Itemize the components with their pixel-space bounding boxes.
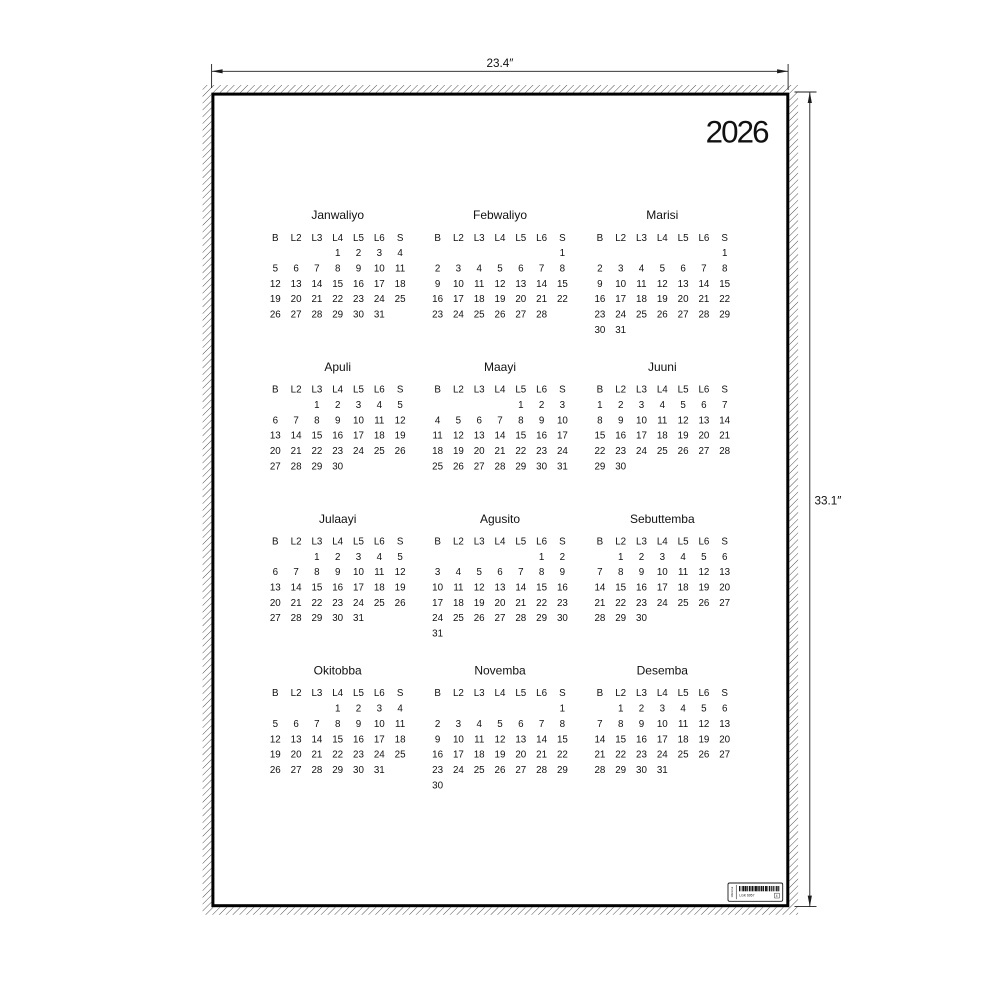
svg-text:21: 21: [515, 598, 526, 609]
svg-text:2: 2: [597, 264, 602, 275]
svg-text:L3: L3: [474, 536, 485, 547]
svg-text:1: 1: [518, 400, 523, 411]
svg-text:19: 19: [395, 431, 406, 442]
svg-text:27: 27: [719, 750, 730, 761]
svg-text:28: 28: [698, 310, 709, 321]
svg-text:L5: L5: [353, 385, 364, 396]
svg-text:L5: L5: [353, 536, 364, 547]
svg-text:21: 21: [291, 598, 302, 609]
svg-text:7: 7: [722, 400, 727, 411]
svg-text:Maayi: Maayi: [484, 360, 516, 374]
svg-text:2: 2: [639, 704, 644, 715]
svg-text:B: B: [272, 385, 279, 396]
svg-text:26: 26: [395, 598, 406, 609]
svg-text:L2: L2: [453, 536, 464, 547]
svg-text:4: 4: [476, 264, 482, 275]
svg-text:24: 24: [453, 310, 464, 321]
svg-text:27: 27: [515, 310, 526, 321]
svg-text:8: 8: [314, 415, 320, 426]
svg-text:23.4″: 23.4″: [487, 57, 514, 70]
svg-text:17: 17: [657, 582, 668, 593]
svg-text:26: 26: [270, 310, 281, 321]
svg-text:13: 13: [678, 279, 689, 290]
svg-text:12: 12: [270, 279, 281, 290]
svg-text:5: 5: [701, 704, 707, 715]
svg-text:9: 9: [539, 415, 544, 426]
svg-text:31: 31: [353, 613, 364, 624]
svg-text:10: 10: [636, 415, 647, 426]
svg-text:3: 3: [377, 704, 383, 715]
svg-text:30: 30: [615, 461, 626, 472]
svg-text:21: 21: [311, 750, 322, 761]
svg-text:L6: L6: [374, 688, 385, 699]
svg-text:L2: L2: [291, 233, 302, 244]
svg-text:15: 15: [557, 734, 568, 745]
svg-text:24: 24: [374, 750, 385, 761]
svg-text:22: 22: [536, 598, 547, 609]
svg-text:24: 24: [615, 310, 626, 321]
svg-text:26: 26: [474, 613, 485, 624]
svg-text:24: 24: [353, 446, 364, 457]
svg-text:11: 11: [474, 734, 484, 745]
svg-text:S: S: [397, 385, 404, 396]
svg-text:30: 30: [536, 461, 547, 472]
svg-text:30: 30: [332, 613, 343, 624]
svg-text:L4: L4: [657, 385, 668, 396]
svg-text:L3: L3: [636, 688, 647, 699]
svg-text:21: 21: [594, 598, 605, 609]
svg-text:8: 8: [597, 415, 603, 426]
svg-text:9: 9: [356, 264, 361, 275]
svg-text:5: 5: [701, 552, 707, 563]
svg-text:19: 19: [678, 431, 689, 442]
svg-text:13: 13: [474, 431, 485, 442]
svg-text:14: 14: [515, 582, 526, 593]
svg-text:23: 23: [353, 750, 364, 761]
svg-text:14: 14: [311, 734, 322, 745]
svg-text:16: 16: [636, 582, 647, 593]
svg-text:14: 14: [291, 431, 302, 442]
svg-text:Marisi: Marisi: [646, 208, 678, 222]
svg-text:22: 22: [557, 294, 568, 305]
svg-text:18: 18: [474, 750, 485, 761]
svg-text:12: 12: [495, 734, 506, 745]
svg-text:1: 1: [722, 248, 727, 259]
svg-text:6: 6: [293, 264, 299, 275]
svg-text:S: S: [397, 688, 404, 699]
svg-text:7: 7: [293, 567, 298, 578]
svg-text:28: 28: [311, 765, 322, 776]
svg-text:L6: L6: [374, 233, 385, 244]
svg-text:L3: L3: [311, 385, 322, 396]
svg-text:25: 25: [432, 461, 443, 472]
svg-text:30: 30: [594, 325, 605, 336]
svg-text:17: 17: [615, 294, 626, 305]
svg-text:17: 17: [432, 598, 443, 609]
svg-text:25: 25: [657, 446, 668, 457]
svg-text:20: 20: [719, 582, 730, 593]
svg-text:L6: L6: [536, 688, 547, 699]
svg-text:L5: L5: [678, 688, 689, 699]
svg-text:21: 21: [536, 750, 547, 761]
svg-text:L3: L3: [474, 688, 485, 699]
svg-text:L4: L4: [332, 233, 343, 244]
svg-text:10: 10: [374, 264, 385, 275]
svg-text:Janwaliyo: Janwaliyo: [311, 208, 364, 222]
svg-text:5: 5: [660, 264, 666, 275]
svg-text:S: S: [721, 233, 728, 244]
svg-text:4: 4: [660, 400, 666, 411]
svg-text:18: 18: [636, 294, 647, 305]
svg-text:10: 10: [453, 279, 464, 290]
svg-text:22: 22: [332, 294, 343, 305]
svg-text:Agusito: Agusito: [480, 512, 520, 526]
svg-text:16: 16: [432, 294, 443, 305]
svg-text:27: 27: [474, 461, 485, 472]
svg-text:5: 5: [497, 264, 503, 275]
svg-text:6: 6: [701, 400, 707, 411]
svg-text:28: 28: [536, 765, 547, 776]
svg-text:L6: L6: [374, 536, 385, 547]
svg-text:25: 25: [474, 310, 485, 321]
svg-text:28: 28: [594, 613, 605, 624]
svg-text:25: 25: [374, 446, 385, 457]
svg-text:L3: L3: [474, 233, 485, 244]
svg-text:17: 17: [557, 431, 568, 442]
svg-text:27: 27: [515, 765, 526, 776]
svg-text:29: 29: [515, 461, 526, 472]
svg-text:26: 26: [270, 765, 281, 776]
svg-text:13: 13: [291, 734, 302, 745]
svg-text:13: 13: [719, 567, 730, 578]
svg-text:S: S: [559, 385, 566, 396]
svg-text:5: 5: [397, 552, 403, 563]
svg-text:9: 9: [435, 734, 440, 745]
svg-text:29: 29: [615, 765, 626, 776]
svg-text:L6: L6: [536, 385, 547, 396]
svg-text:18: 18: [395, 279, 406, 290]
svg-text:14UGCal: 14UGCal: [730, 886, 734, 897]
svg-text:2: 2: [435, 264, 440, 275]
svg-text:10: 10: [657, 567, 668, 578]
svg-text:6: 6: [476, 415, 482, 426]
svg-text:11: 11: [657, 415, 667, 426]
svg-text:7: 7: [539, 719, 544, 730]
svg-text:24: 24: [636, 446, 647, 457]
svg-text:24: 24: [374, 294, 385, 305]
svg-text:6: 6: [497, 567, 503, 578]
svg-text:3: 3: [660, 704, 666, 715]
svg-text:22: 22: [311, 446, 322, 457]
svg-text:12: 12: [678, 415, 689, 426]
svg-text:21: 21: [698, 294, 709, 305]
svg-text:8: 8: [618, 567, 624, 578]
svg-text:4: 4: [377, 552, 383, 563]
svg-text:8: 8: [618, 719, 624, 730]
svg-text:30: 30: [636, 765, 647, 776]
svg-text:4: 4: [397, 704, 403, 715]
svg-text:18: 18: [453, 598, 464, 609]
svg-text:S: S: [721, 536, 728, 547]
svg-text:11: 11: [433, 431, 443, 442]
svg-text:2: 2: [539, 400, 544, 411]
svg-text:19: 19: [657, 294, 668, 305]
svg-text:22: 22: [594, 446, 605, 457]
svg-text:9: 9: [597, 279, 602, 290]
svg-text:24: 24: [353, 598, 364, 609]
svg-text:L6: L6: [698, 385, 709, 396]
svg-text:1: 1: [618, 704, 623, 715]
svg-text:26: 26: [495, 765, 506, 776]
svg-text:6: 6: [722, 704, 728, 715]
svg-text:29: 29: [332, 765, 343, 776]
svg-text:13: 13: [495, 582, 506, 593]
svg-text:25: 25: [636, 310, 647, 321]
svg-text:7: 7: [539, 264, 544, 275]
svg-text:27: 27: [270, 613, 281, 624]
svg-text:23: 23: [332, 446, 343, 457]
svg-text:23: 23: [636, 598, 647, 609]
svg-text:L4: L4: [657, 688, 668, 699]
svg-text:12: 12: [395, 415, 406, 426]
svg-text:14: 14: [594, 582, 605, 593]
svg-text:L5: L5: [515, 385, 526, 396]
svg-text:30: 30: [353, 310, 364, 321]
svg-text:3: 3: [660, 552, 666, 563]
svg-text:20: 20: [270, 598, 281, 609]
svg-text:27: 27: [270, 461, 281, 472]
svg-text:18: 18: [432, 446, 443, 457]
svg-text:21: 21: [719, 431, 730, 442]
svg-text:11: 11: [678, 719, 688, 730]
svg-text:27: 27: [678, 310, 689, 321]
svg-text:5: 5: [497, 719, 503, 730]
svg-text:29: 29: [557, 765, 568, 776]
svg-text:15: 15: [311, 431, 322, 442]
svg-text:6: 6: [273, 567, 279, 578]
svg-text:19: 19: [495, 294, 506, 305]
svg-text:21: 21: [536, 294, 547, 305]
svg-text:15: 15: [594, 431, 605, 442]
svg-text:L3: L3: [636, 536, 647, 547]
svg-text:8: 8: [518, 415, 524, 426]
svg-text:11: 11: [395, 719, 405, 730]
svg-text:22: 22: [615, 750, 626, 761]
svg-text:5: 5: [680, 400, 686, 411]
svg-text:8: 8: [539, 567, 545, 578]
svg-text:1: 1: [560, 704, 565, 715]
svg-text:24: 24: [453, 765, 464, 776]
svg-text:27: 27: [698, 446, 709, 457]
svg-text:19: 19: [698, 734, 709, 745]
svg-text:4: 4: [456, 567, 462, 578]
svg-text:22: 22: [615, 598, 626, 609]
svg-text:19: 19: [474, 598, 485, 609]
svg-text:29: 29: [594, 461, 605, 472]
svg-text:LGK 6957: LGK 6957: [739, 894, 754, 898]
svg-text:31: 31: [657, 765, 668, 776]
svg-text:2026: 2026: [706, 115, 770, 150]
svg-text:23: 23: [353, 294, 364, 305]
svg-text:16: 16: [636, 734, 647, 745]
svg-text:17: 17: [636, 431, 647, 442]
svg-text:1: 1: [539, 552, 544, 563]
svg-text:L5: L5: [515, 536, 526, 547]
svg-text:14: 14: [291, 582, 302, 593]
svg-text:18: 18: [374, 431, 385, 442]
svg-text:30: 30: [636, 613, 647, 624]
svg-text:5: 5: [273, 264, 279, 275]
svg-text:27: 27: [495, 613, 506, 624]
svg-text:10: 10: [453, 734, 464, 745]
svg-text:L6: L6: [698, 536, 709, 547]
svg-text:S: S: [721, 688, 728, 699]
svg-text:25: 25: [395, 294, 406, 305]
svg-text:23: 23: [332, 598, 343, 609]
svg-text:L2: L2: [291, 536, 302, 547]
svg-text:20: 20: [291, 750, 302, 761]
svg-text:2: 2: [356, 248, 361, 259]
svg-text:L6: L6: [536, 536, 547, 547]
svg-text:L4: L4: [332, 536, 343, 547]
svg-text:2: 2: [335, 552, 340, 563]
svg-text:3: 3: [456, 264, 462, 275]
svg-text:Sebuttemba: Sebuttemba: [630, 512, 695, 526]
svg-text:11: 11: [395, 264, 405, 275]
svg-text:9: 9: [560, 567, 565, 578]
svg-text:L2: L2: [615, 688, 626, 699]
svg-text:9: 9: [639, 567, 644, 578]
svg-text:19: 19: [495, 750, 506, 761]
svg-text:1: 1: [560, 248, 565, 259]
svg-text:20: 20: [270, 446, 281, 457]
svg-text:Juuni: Juuni: [648, 360, 677, 374]
svg-text:7: 7: [497, 415, 502, 426]
svg-text:12: 12: [453, 431, 464, 442]
svg-text:30: 30: [432, 780, 443, 791]
svg-text:19: 19: [395, 582, 406, 593]
svg-text:S: S: [397, 233, 404, 244]
svg-text:16: 16: [353, 734, 364, 745]
svg-text:20: 20: [719, 734, 730, 745]
svg-text:L4: L4: [495, 385, 506, 396]
svg-text:L2: L2: [453, 385, 464, 396]
svg-text:29: 29: [615, 613, 626, 624]
svg-text:10: 10: [657, 719, 668, 730]
svg-text:28: 28: [311, 310, 322, 321]
svg-text:22: 22: [719, 294, 730, 305]
svg-text:16: 16: [557, 582, 568, 593]
svg-text:18: 18: [474, 294, 485, 305]
svg-text:Novemba: Novemba: [474, 664, 526, 678]
svg-text:6: 6: [273, 415, 279, 426]
svg-text:S: S: [559, 233, 566, 244]
svg-text:30: 30: [332, 461, 343, 472]
svg-text:20: 20: [474, 446, 485, 457]
svg-text:8: 8: [335, 264, 341, 275]
svg-text:B: B: [597, 536, 604, 547]
svg-text:17: 17: [453, 294, 464, 305]
svg-text:L4: L4: [495, 688, 506, 699]
svg-text:5: 5: [397, 400, 403, 411]
svg-text:28: 28: [495, 461, 506, 472]
svg-text:1: 1: [597, 400, 602, 411]
svg-text:18: 18: [678, 582, 689, 593]
svg-text:B: B: [597, 385, 604, 396]
svg-text:13: 13: [270, 582, 281, 593]
svg-text:15: 15: [311, 582, 322, 593]
svg-text:3: 3: [356, 400, 362, 411]
svg-text:4: 4: [397, 248, 403, 259]
svg-text:17: 17: [353, 582, 364, 593]
svg-text:31: 31: [432, 629, 443, 640]
svg-text:L6: L6: [536, 233, 547, 244]
svg-text:12: 12: [395, 567, 406, 578]
svg-text:23: 23: [594, 310, 605, 321]
svg-text:8: 8: [335, 719, 341, 730]
svg-text:7: 7: [518, 567, 523, 578]
svg-text:25: 25: [678, 598, 689, 609]
svg-text:33.1″: 33.1″: [815, 495, 842, 508]
svg-text:20: 20: [495, 598, 506, 609]
svg-text:12: 12: [474, 582, 485, 593]
svg-text:30: 30: [353, 765, 364, 776]
svg-text:26: 26: [698, 598, 709, 609]
svg-text:L5: L5: [678, 233, 689, 244]
svg-text:25: 25: [395, 750, 406, 761]
svg-text:3: 3: [456, 719, 462, 730]
svg-text:L3: L3: [636, 385, 647, 396]
svg-text:16: 16: [594, 294, 605, 305]
svg-text:23: 23: [615, 446, 626, 457]
svg-text:L6: L6: [374, 385, 385, 396]
svg-text:31: 31: [374, 310, 385, 321]
svg-text:28: 28: [719, 446, 730, 457]
svg-text:26: 26: [678, 446, 689, 457]
svg-text:4: 4: [377, 400, 383, 411]
svg-text:11: 11: [678, 567, 688, 578]
svg-text:13: 13: [291, 279, 302, 290]
svg-text:8: 8: [722, 264, 728, 275]
svg-text:1: 1: [314, 552, 319, 563]
svg-text:26: 26: [495, 310, 506, 321]
svg-text:24: 24: [657, 750, 668, 761]
svg-text:S: S: [721, 385, 728, 396]
svg-text:S: S: [559, 536, 566, 547]
svg-text:23: 23: [432, 765, 443, 776]
svg-text:28: 28: [536, 310, 547, 321]
svg-text:19: 19: [698, 582, 709, 593]
svg-text:6: 6: [518, 719, 524, 730]
svg-text:4: 4: [639, 264, 645, 275]
svg-text:20: 20: [291, 294, 302, 305]
svg-text:16: 16: [432, 750, 443, 761]
svg-text:27: 27: [719, 598, 730, 609]
svg-text:7: 7: [293, 415, 298, 426]
svg-text:10: 10: [353, 567, 364, 578]
svg-text:3: 3: [377, 248, 383, 259]
svg-text:L3: L3: [636, 233, 647, 244]
svg-text:23: 23: [432, 310, 443, 321]
svg-text:8: 8: [560, 719, 566, 730]
svg-text:24: 24: [432, 613, 443, 624]
svg-text:20: 20: [515, 750, 526, 761]
svg-text:10: 10: [615, 279, 626, 290]
svg-text:19: 19: [270, 294, 281, 305]
svg-text:2: 2: [435, 719, 440, 730]
svg-text:1: 1: [618, 552, 623, 563]
svg-text:17: 17: [353, 431, 364, 442]
